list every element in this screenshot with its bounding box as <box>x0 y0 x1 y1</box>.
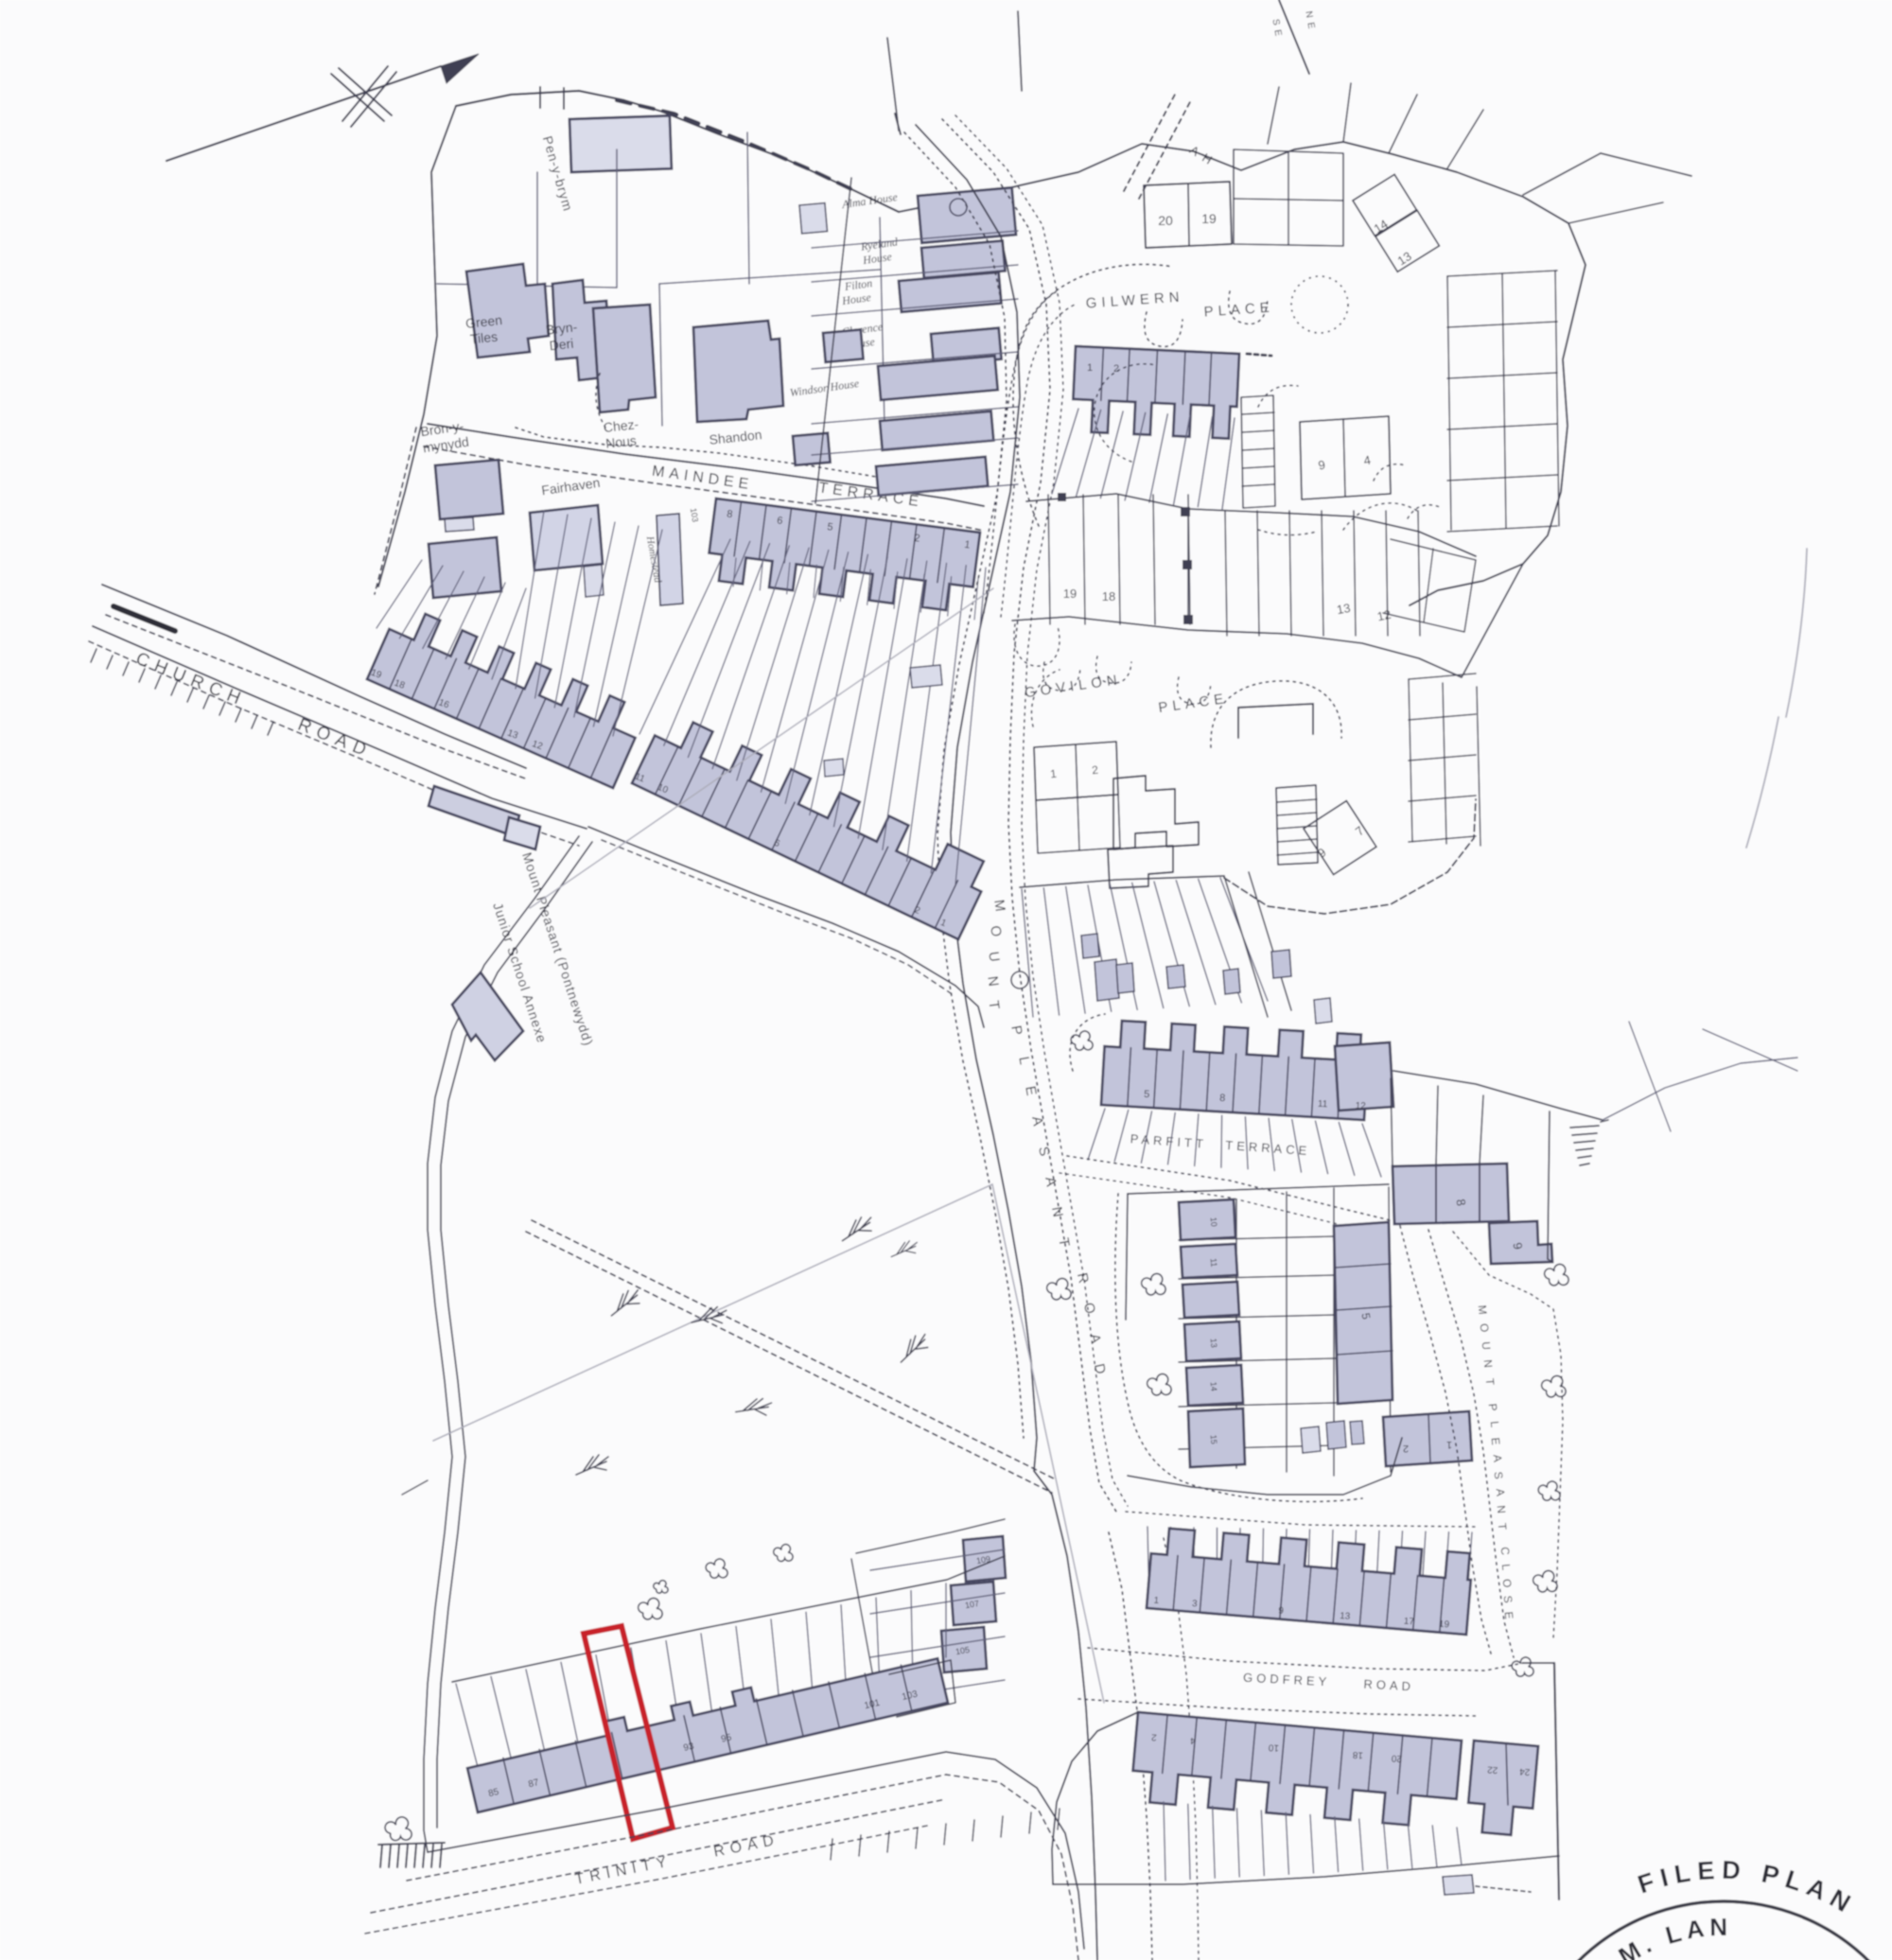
svg-text:20: 20 <box>1391 1753 1402 1764</box>
svg-text:13: 13 <box>1209 1338 1219 1348</box>
svg-text:18: 18 <box>1102 589 1115 604</box>
svg-text:19: 19 <box>1063 586 1077 601</box>
svg-text:8: 8 <box>1219 1093 1226 1104</box>
svg-text:10: 10 <box>1209 1216 1219 1227</box>
svg-text:19: 19 <box>1201 211 1217 226</box>
svg-text:11: 11 <box>1209 1258 1219 1268</box>
svg-text:12: 12 <box>1355 1101 1366 1112</box>
svg-text:M: M <box>990 899 1008 913</box>
svg-text:C: C <box>1498 1547 1513 1556</box>
svg-text:1: 1 <box>1087 362 1093 374</box>
svg-text:ROAD: ROAD <box>1363 1677 1414 1694</box>
svg-text:O: O <box>987 924 1004 937</box>
svg-text:20: 20 <box>1158 213 1173 228</box>
svg-text:N: N <box>1495 1505 1509 1514</box>
svg-text:N: N <box>1481 1359 1496 1369</box>
svg-text:P: P <box>1486 1403 1500 1411</box>
svg-text:S: S <box>1501 1595 1515 1603</box>
svg-text:10: 10 <box>1268 1741 1279 1753</box>
svg-text:12: 12 <box>1375 607 1392 624</box>
svg-text:17: 17 <box>1403 1617 1414 1628</box>
svg-text:Deri: Deri <box>549 336 574 354</box>
svg-text:U: U <box>1480 1341 1494 1351</box>
svg-text:13: 13 <box>1340 1611 1351 1622</box>
svg-text:M: M <box>1476 1304 1490 1315</box>
svg-text:14: 14 <box>1209 1381 1219 1391</box>
svg-text:15: 15 <box>1209 1434 1219 1444</box>
svg-text:Nous: Nous <box>604 432 637 450</box>
svg-text:Tiles: Tiles <box>469 329 499 347</box>
svg-text:19: 19 <box>1439 1619 1450 1631</box>
svg-text:O: O <box>1478 1322 1492 1333</box>
svg-text:18: 18 <box>1352 1749 1363 1760</box>
svg-text:A: A <box>1491 1454 1505 1462</box>
svg-text:S: S <box>1492 1471 1506 1479</box>
svg-text:O: O <box>1500 1578 1515 1588</box>
svg-text:11: 11 <box>1318 1099 1328 1111</box>
svg-text:5: 5 <box>1144 1089 1150 1100</box>
svg-text:22: 22 <box>1486 1764 1498 1776</box>
svg-text:1: 1 <box>1446 1439 1452 1450</box>
svg-text:2: 2 <box>1403 1443 1409 1454</box>
svg-text:A: A <box>1494 1488 1508 1496</box>
svg-text:E: E <box>1502 1611 1516 1619</box>
svg-text:13: 13 <box>1336 601 1352 617</box>
svg-text:E: E <box>1489 1437 1503 1445</box>
svg-text:24: 24 <box>1518 1766 1530 1777</box>
